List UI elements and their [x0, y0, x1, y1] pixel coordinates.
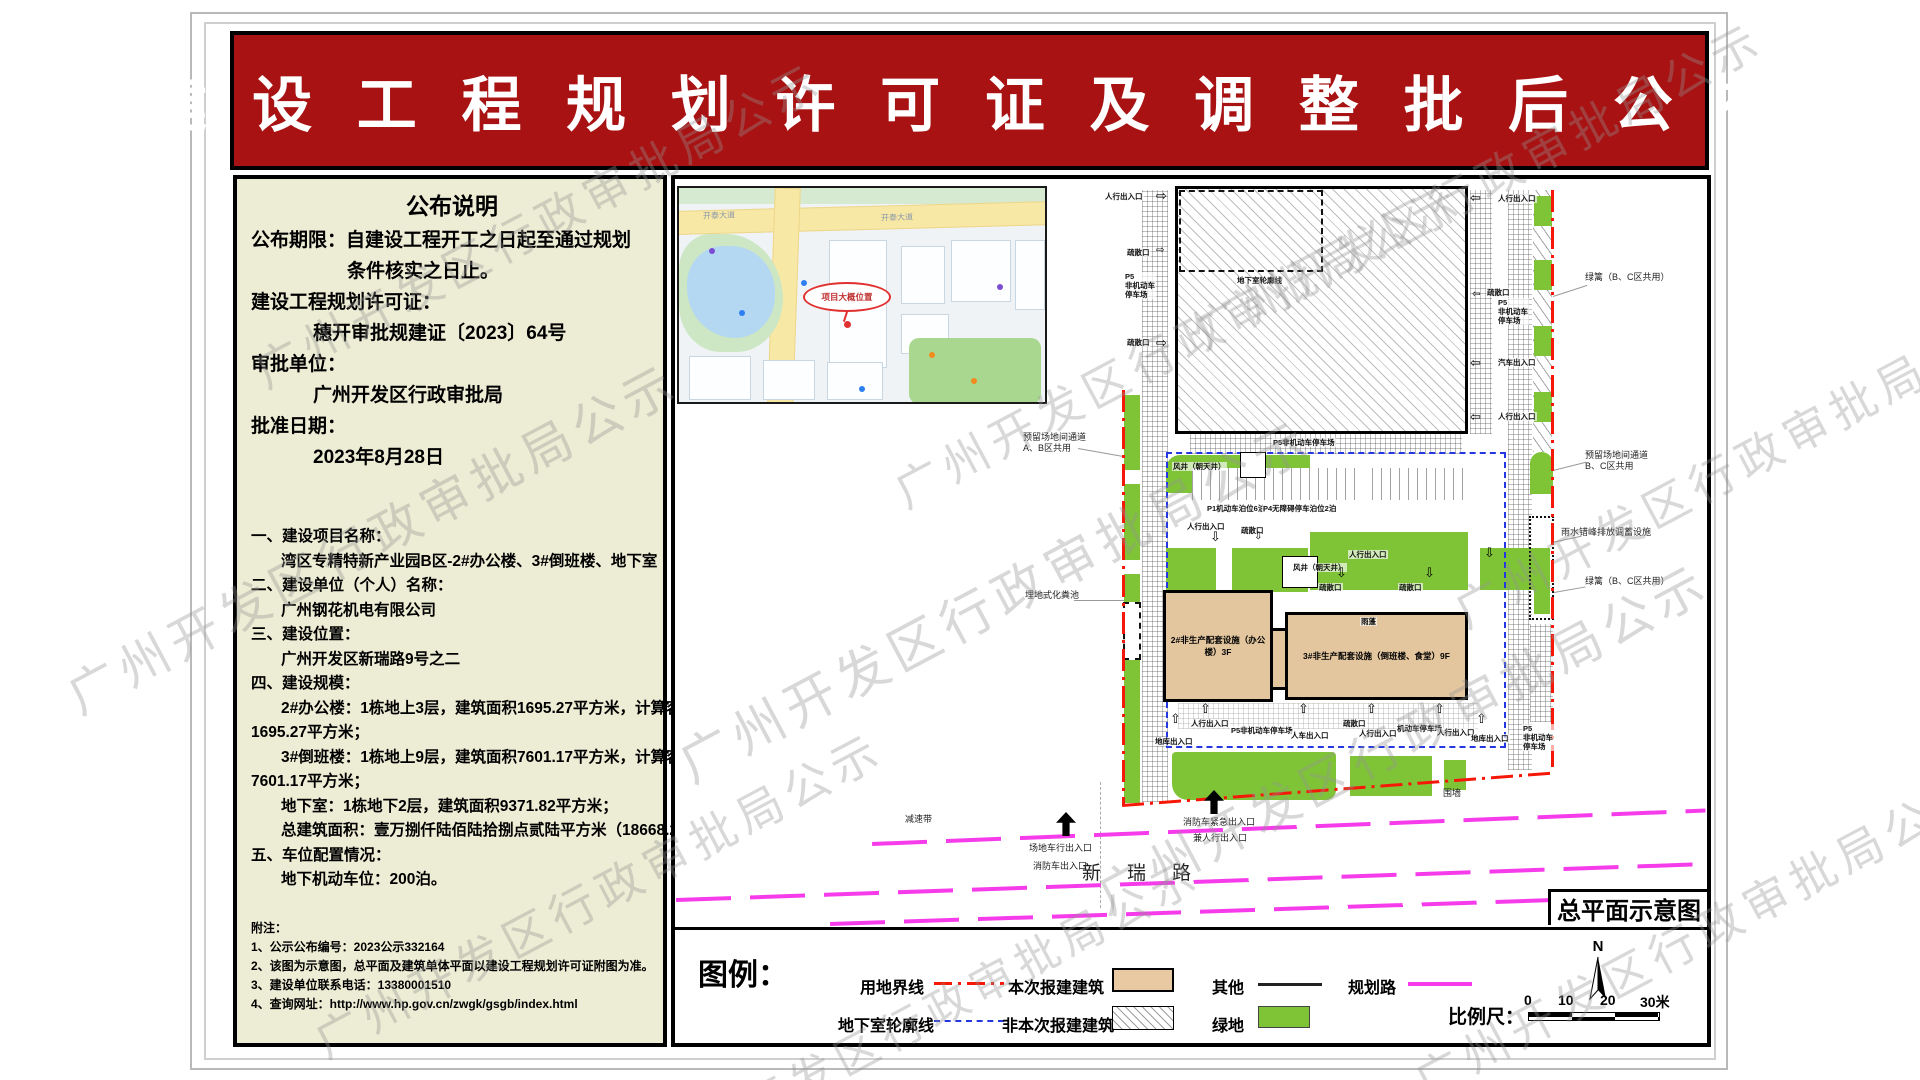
entrance-arrow-icon: ⇩ [1210, 530, 1221, 543]
plan-label: 绿篱（B、C区共用） [1584, 272, 1671, 283]
stair-vent-box [1240, 452, 1266, 478]
plan-label: 预留场地间通道 A、B区共用 [1022, 432, 1087, 454]
plan-label: P5非机动车停车场 [1230, 726, 1294, 735]
north-label: N [1580, 938, 1616, 955]
permit-number: 穗开审批规建证〔2023〕64号 [251, 318, 653, 349]
legend-swatch-existing-building [1112, 1006, 1174, 1030]
map-poi-dot [971, 378, 977, 384]
plan-label: 埋地式化粪池 [1024, 590, 1080, 601]
map-building-block [763, 360, 815, 400]
plan-label: 地下室轮廓线 [1236, 276, 1283, 285]
plan-label: 人行出入口 [1348, 550, 1388, 559]
note-url: 4、查询网址：http://www.hp.gov.cn/zwgk/gsgb/in… [251, 995, 653, 1014]
plan-label: 人行出入口 [1190, 719, 1230, 728]
legend-label: 本次报建建筑 [1008, 974, 1104, 998]
entrance-arrow-icon: ⇧ [1366, 702, 1377, 715]
plan-label: 绿篱（B、C区共用） [1584, 576, 1671, 587]
plan-label: 兼人行出入口 [1192, 833, 1248, 844]
plan-title: 总平面示意图 [1548, 889, 1707, 925]
notice-line: 批准日期： [251, 411, 653, 442]
scale-tick: 10 [1558, 992, 1574, 1008]
legend-label: 规划路 [1348, 974, 1396, 998]
map-building-block [951, 240, 1011, 302]
map-poi-dot [739, 310, 745, 316]
map-callout-text: 项目大概位置 [821, 291, 872, 303]
legend-label: 用地界线 [860, 974, 924, 998]
project-location: 广州开发区新瑞路9号之二 [251, 648, 653, 673]
map-poi-dot [997, 284, 1003, 290]
scale-line: 2#办公楼：1栋地上3层，建筑面积1695.27平方米，计算容积率面积 [251, 697, 653, 722]
plan-label: 风井（朝天井） [1172, 462, 1227, 471]
plan-label: 消防车紧急出入口 [1182, 817, 1256, 828]
plan-label: 人行出入口 [1497, 194, 1537, 203]
legend-swatch-new-building [1112, 968, 1174, 992]
legend-label: 其他 [1212, 974, 1244, 998]
greenery-gap [1124, 470, 1140, 484]
parking-strip [1530, 624, 1553, 722]
map-location-dot [844, 321, 851, 328]
plan-label: 地库出入口 [1470, 734, 1510, 743]
scale-line: 7601.17平方米； [251, 770, 653, 795]
note-line: 2、该图为示意图，总平面及建筑单体平面以建设工程规划许可证附图为准。 [251, 957, 653, 976]
greenery-patch [1534, 196, 1552, 226]
plan-label: P4无障碍停车泊位2泊 [1262, 504, 1337, 513]
map-road-label: 开泰大道 [703, 209, 735, 221]
map-building-block [689, 356, 751, 400]
plan-label: 雨水错峰排放调蓄设施 [1560, 527, 1652, 538]
legend-swatch-boundary [934, 982, 1004, 985]
plan-label: P1机动车泊位6泊 [1206, 504, 1266, 513]
entrance-arrow-icon: ⇨ [1156, 336, 1167, 349]
plan-label: 汽车出入口 [1497, 358, 1537, 367]
map-park [909, 338, 1041, 404]
greenery-patch [1534, 392, 1552, 422]
entrance-arrow-icon: ⇦ [1470, 410, 1481, 423]
scale-line: 地下室：1栋地下2层，建筑面积9371.82平方米； [251, 795, 653, 820]
legend-label: 地下室轮廓线 [838, 1012, 934, 1036]
map-poi-dot [801, 280, 807, 286]
north-arrow: N [1580, 938, 1616, 1008]
legend-swatch-greenery [1258, 1006, 1310, 1028]
notice-line: 条件核实之日止。 [251, 256, 653, 287]
plan-label: 疏散口 [1126, 248, 1151, 257]
driveway-centerline [1100, 782, 1101, 908]
plan-label: 人行出入口 [1497, 412, 1537, 421]
map-building-block [901, 246, 945, 304]
notice-line: 审批单位： [251, 349, 653, 380]
entrance-arrow-icon: ⇩ [1254, 532, 1262, 542]
map-poi-dot [859, 386, 865, 392]
scale-bar [1528, 1012, 1660, 1021]
entrance-arrow-icon: ⇧ [1298, 702, 1309, 715]
scale-label: 比例尺： [1448, 1002, 1524, 1029]
parking-line: 地下机动车位：200泊。 [251, 868, 653, 893]
legend-title: 图例： [698, 950, 788, 994]
approval-date: 2023年8月28日 [251, 442, 653, 473]
plan-label: 雨蓬 [1360, 617, 1377, 626]
item-heading: 二、建设单位（个人）名称： [251, 574, 653, 599]
greenery-patch [1172, 752, 1336, 800]
greenery-patch [1534, 326, 1552, 356]
entrance-arrow-icon: ⇧ [1434, 702, 1445, 715]
plan-label: 围墙 [1442, 788, 1462, 799]
map-poi-dot [709, 248, 715, 254]
plan-label: 疏散口 [1398, 583, 1423, 592]
entrance-arrow-icon: ⇦ [1472, 290, 1480, 300]
legend-separator [671, 927, 1711, 930]
entrance-arrow-icon: ⇦ [1470, 191, 1481, 204]
plan-label: 疏散口 [1486, 288, 1511, 297]
item-heading: 四、建设规模： [251, 672, 653, 697]
septic-tank-outline [1123, 602, 1141, 660]
legend-swatch-basement [934, 1020, 1004, 1022]
entrance-arrow-icon: ⇧ [1200, 702, 1211, 715]
greenery-patch [1444, 760, 1466, 790]
item-heading: 五、车位配置情况： [251, 844, 653, 869]
notice-panel: 公布说明 公布期限：自建设工程开工之日起至通过规划 条件核实之日止。 建设工程规… [233, 175, 667, 1047]
leader-line [1074, 600, 1124, 601]
map-green [679, 188, 1047, 204]
map-road-label: 开泰大道 [881, 211, 913, 223]
legend-swatch-planning-road [1408, 982, 1472, 986]
plan-label: 预留场地间通道 B、C区共用 [1584, 450, 1649, 472]
notice-line: 公布期限：自建设工程开工之日起至通过规划 [251, 225, 653, 256]
notice-line: 建设工程规划许可证： [251, 287, 653, 318]
public-notice-board: 建 设 工 程 规 划 许 可 证 及 调 整 批 后 公 布 公布说明 公布期… [0, 0, 1920, 1080]
note-line: 1、公示公布编号：2023公示332164 [251, 938, 653, 957]
scale-tick: 30米 [1640, 992, 1670, 1012]
approval-authority: 广州开发区行政审批局 [251, 380, 653, 411]
entrance-arrow-icon: ⇧ [1170, 712, 1181, 725]
parking-strip [1470, 190, 1492, 434]
item-heading: 三、建设位置： [251, 623, 653, 648]
plan-label: P5非机动车停车场 [1272, 438, 1336, 447]
total-area-line: 总建筑面积：壹万捌仟陆佰陆拾捌点贰陆平方米（18668.26 ㎡）。 [251, 819, 653, 844]
site-boundary-line [1122, 390, 1125, 806]
item-heading: 一、建设项目名称： [251, 525, 653, 550]
plan-label: 疏散口 [1342, 719, 1367, 728]
note-line: 3、建设单位联系电话：13380001510 [251, 976, 653, 995]
site-boundary-line [1551, 190, 1554, 772]
building-2-office: 2#非生产配套设施（办公楼）3F [1163, 590, 1273, 702]
banner: 建 设 工 程 规 划 许 可 证 及 调 整 批 后 公 布 [230, 31, 1709, 170]
greenery-strip [1124, 395, 1140, 803]
project-name: 湾区专精特新产业园B区-2#办公楼、3#倒班楼、地下室 [251, 550, 653, 575]
greenery-gap [1124, 560, 1140, 574]
plan-title-text: 总平面示意图 [1557, 891, 1701, 926]
owner-name: 广州钢花机电有限公司 [251, 599, 653, 624]
plan-label: 消防车出入口 [1032, 861, 1088, 872]
map-callout: 项目大概位置 [803, 282, 891, 312]
entrance-arrow-icon: ⇨ [1156, 189, 1167, 202]
greenery-patch [1530, 452, 1553, 494]
north-needle-icon [1586, 955, 1610, 1003]
map-poi-dot [929, 352, 935, 358]
entrance-arrow-icon: ⇩ [1484, 546, 1495, 559]
building-3-label: 3#非生产配套设施（倒班楼、食堂）9F [1297, 650, 1456, 662]
location-map-inset: 开泰大道 开泰大道 项目大概位置 [677, 186, 1047, 404]
page-title: 建 设 工 程 规 划 许 可 证 及 调 整 批 后 公 布 [147, 57, 1791, 144]
map-building-block [1015, 240, 1045, 310]
basement-outline-existing [1179, 190, 1323, 272]
plan-label: 疏散口 [1126, 338, 1151, 347]
entrance-arrow-icon: ⇦ [1470, 356, 1481, 369]
map-building-block [827, 362, 883, 400]
greenery-patch [1350, 756, 1432, 796]
scale-tick: 0 [1524, 992, 1532, 1008]
plan-label: 人车出入口 [1290, 731, 1330, 740]
entrance-arrow-icon: ⇨ [1156, 246, 1164, 256]
plan-label: 人行出入口 [1358, 729, 1398, 738]
scale-line: 3#倒班楼：1栋地上9层，建筑面积7601.17平方米，计算容积率面积 [251, 746, 653, 771]
building-2-label: 2#非生产配套设施（办公楼）3F [1166, 634, 1270, 658]
plan-label: 场地车行出入口 [1028, 843, 1093, 854]
entrance-arrow-icon: ⇩ [1336, 566, 1347, 579]
notes-block: 附注： 1、公示公布编号：2023公示332164 2、该图为示意图，总平面及建… [251, 919, 653, 1014]
plan-label: 地库出入口 [1154, 737, 1194, 746]
legend-swatch-other [1258, 983, 1322, 986]
plan-label: 减速带 [904, 814, 933, 825]
notice-heading: 公布说明 [251, 187, 653, 221]
parking-strip [1508, 190, 1532, 770]
note-line: 附注： [251, 919, 653, 938]
plan-label: P5 非机动车 停车场 [1124, 272, 1156, 299]
plan-label: P5 非机动车 停车场 [1522, 724, 1554, 751]
plan-label: P5 非机动车 停车场 [1497, 298, 1529, 325]
plan-label: 人行出入口 [1104, 192, 1144, 201]
spacer [251, 473, 653, 525]
entrance-arrow-icon: ⇩ [1424, 566, 1435, 579]
scale-line: 1695.27平方米； [251, 721, 653, 746]
plan-label: 疏散口 [1318, 583, 1343, 592]
greenery-patch [1534, 260, 1552, 290]
legend-label: 绿地 [1212, 1012, 1244, 1036]
road-name: 新瑞路 [1082, 858, 1217, 885]
legend-label: 非本次报建建筑 [1002, 1012, 1114, 1036]
entrance-arrow-icon: ⇧ [1476, 712, 1487, 725]
